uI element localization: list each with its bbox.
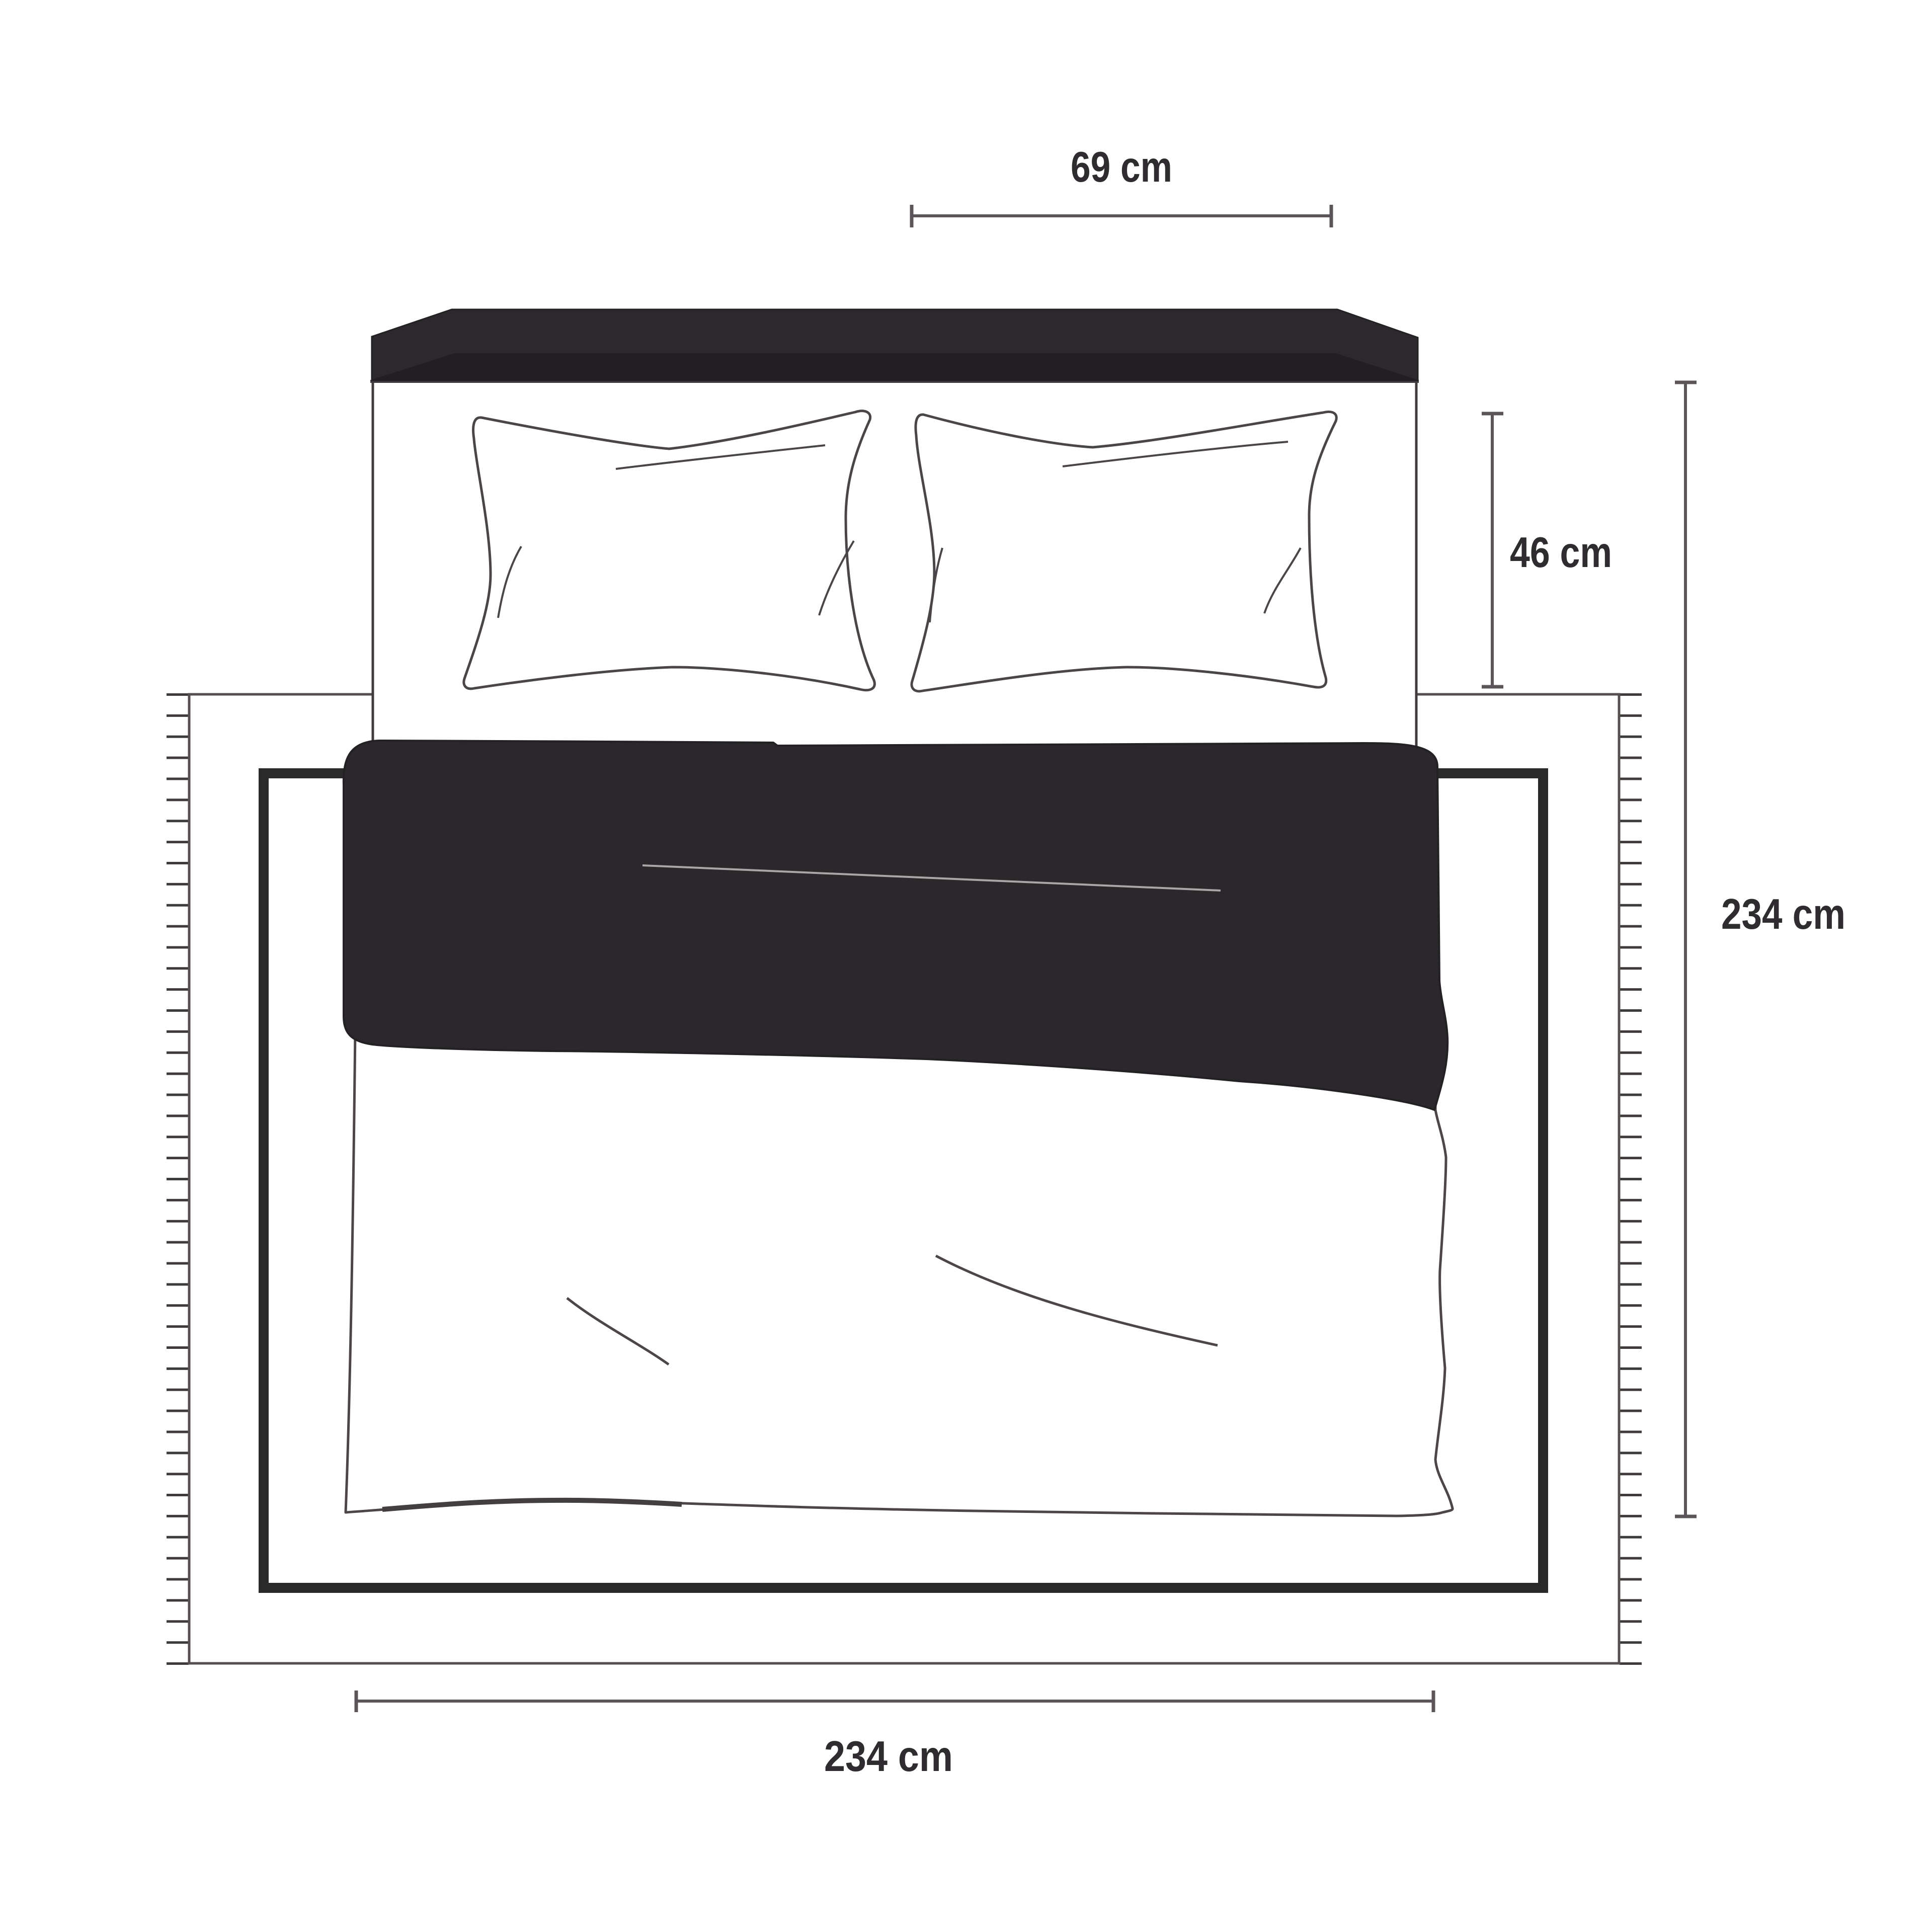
svg-text:234 cm: 234 cm <box>824 1733 953 1781</box>
svg-text:69 cm: 69 cm <box>1071 143 1172 191</box>
svg-text:234 cm: 234 cm <box>1721 891 1845 938</box>
svg-text:46 cm: 46 cm <box>1510 529 1612 577</box>
